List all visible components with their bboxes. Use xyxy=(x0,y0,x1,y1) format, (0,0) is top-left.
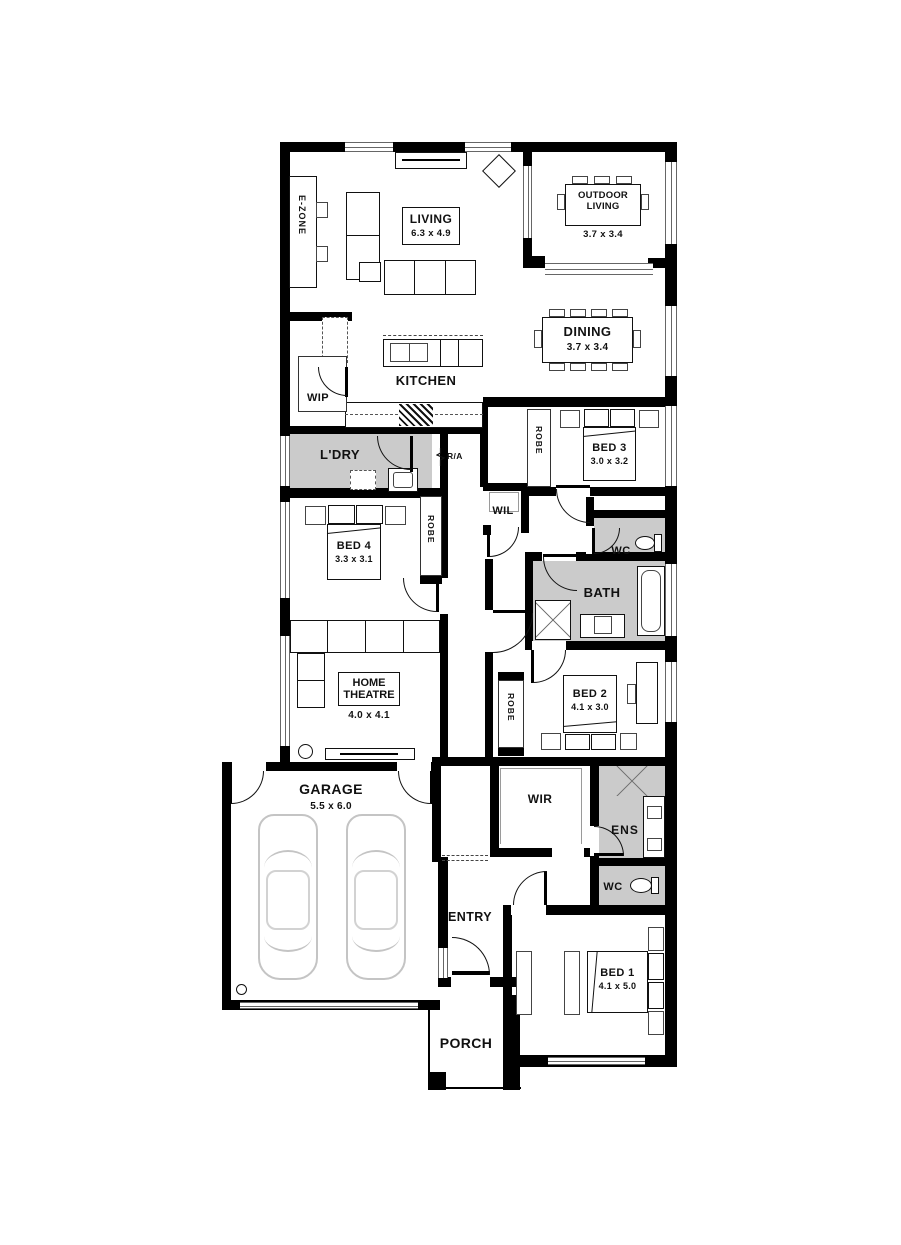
car-2 xyxy=(346,814,406,980)
sofa-h-div2 xyxy=(445,260,446,295)
dining-chair-b3 xyxy=(591,363,607,371)
wall-bed3-bottom xyxy=(525,487,667,496)
dining-chair-b1 xyxy=(549,363,565,371)
dining-label: DINING xyxy=(543,325,632,340)
laundry-label: L'DRY xyxy=(300,448,380,463)
ezone-chair-1 xyxy=(316,202,328,218)
dining-chair-b4 xyxy=(612,363,628,371)
island-overhang xyxy=(383,335,483,336)
bed2-desk xyxy=(636,662,658,724)
car-1 xyxy=(258,814,318,980)
wip-label: WIP xyxy=(300,392,336,404)
outdoor-chair-r xyxy=(641,194,649,210)
bath-label: BATH xyxy=(576,586,628,601)
living-label-box: LIVING 6.3 x 4.9 xyxy=(402,207,460,245)
dining-chair-t4 xyxy=(612,309,628,317)
bath-basin xyxy=(594,616,612,634)
opening-garage-l xyxy=(232,762,266,771)
window-entry-sidelight xyxy=(438,948,448,978)
wc1-toilet xyxy=(635,536,655,550)
bed3-pillow-2 xyxy=(610,409,635,427)
outdoor-dims: 3.7 x 3.4 xyxy=(575,229,631,240)
wall-wir-left xyxy=(490,757,499,857)
dining-chair-t2 xyxy=(570,309,586,317)
driveway-dash-2 xyxy=(442,860,488,861)
car-1-windshield xyxy=(264,850,312,868)
return-air-label: R/A xyxy=(447,452,471,462)
theatre-tv-line xyxy=(340,753,398,755)
tv-line xyxy=(402,159,460,161)
wir-label: WIR xyxy=(515,793,565,806)
wc2-label: WC xyxy=(598,881,628,893)
ens-basin-1 xyxy=(647,806,662,819)
bed4-pillow-2 xyxy=(356,505,383,524)
bath-shower xyxy=(535,600,571,640)
dining-dims: 3.7 x 3.4 xyxy=(543,342,632,353)
bed3-label: BED 3 xyxy=(584,442,635,454)
opening-bed1 xyxy=(511,905,546,915)
bed2-pillow-1 xyxy=(565,734,590,750)
kitchen-label: KITCHEN xyxy=(385,374,467,389)
garage-door-r-arc xyxy=(398,771,431,804)
opening-garage-r xyxy=(397,762,431,771)
bed3-sidetable-r xyxy=(639,410,659,428)
window-bed2-right xyxy=(665,662,677,722)
ezone-label: E-ZONE xyxy=(297,195,307,235)
bed4-robe-jamb-t xyxy=(420,488,442,496)
armchair xyxy=(482,154,516,188)
wall-h-757 xyxy=(432,757,667,766)
ezone-desk: E-ZONE xyxy=(289,176,317,288)
opening-front-door xyxy=(451,977,490,987)
sofa-h-div1 xyxy=(414,260,415,295)
floor-plan-canvas: E-ZONE LIVING 6.3 x 4.9 OUTDOOR LIVING 3… xyxy=(0,0,901,1245)
living-label: LIVING xyxy=(403,213,459,226)
outdoor-chair-t3 xyxy=(616,176,632,184)
window-living-top-2 xyxy=(465,142,511,152)
sliding-door-outdoor xyxy=(545,263,653,275)
laundry-tub-space xyxy=(350,470,376,490)
outdoor-chair-t1 xyxy=(572,176,588,184)
outdoor-label: OUTDOOR LIVING xyxy=(566,191,640,212)
outdoor-chair-t2 xyxy=(594,176,610,184)
wall-ens-wc2 xyxy=(590,858,667,866)
outdoor-table: OUTDOOR LIVING xyxy=(565,184,641,226)
bed2-sidetable-r xyxy=(620,733,637,750)
window-outdoor-right xyxy=(665,162,677,244)
bed4-pillow-1 xyxy=(328,505,355,524)
laundry-sink-bowl xyxy=(393,472,413,488)
bed4-dims: 3.3 x 3.1 xyxy=(328,554,380,564)
garage-floor-waste xyxy=(236,984,247,995)
front-door-arc xyxy=(452,937,490,975)
ens-basin-2 xyxy=(647,838,662,851)
car-2-windshield xyxy=(352,850,400,868)
bed1-pillow-1 xyxy=(648,953,664,980)
wc2-toilet xyxy=(630,878,652,893)
bed4-sidetable-l xyxy=(305,506,326,525)
bed1-dims: 4.1 x 5.0 xyxy=(588,981,647,991)
car-1-roof xyxy=(266,870,310,930)
bed1-pillow-2 xyxy=(648,982,664,1009)
wall-wil-right xyxy=(521,483,529,533)
theatre-sofa-h-div1 xyxy=(327,620,328,653)
dining-chair-t3 xyxy=(591,309,607,317)
bed1-headboard-1 xyxy=(648,927,664,951)
bed2-dims: 4.1 x 3.0 xyxy=(564,702,616,712)
bed1-wardrobe-1 xyxy=(516,951,532,1015)
opening-hall xyxy=(485,610,493,652)
wil-label: WIL xyxy=(486,505,520,517)
car-2-roof xyxy=(354,870,398,930)
bed3-pillow-1 xyxy=(584,409,609,427)
window-laundry-left xyxy=(280,436,290,486)
bed3-dims: 3.0 x 3.2 xyxy=(584,456,635,466)
window-bed4-left xyxy=(280,502,290,598)
ottoman xyxy=(359,262,381,282)
theatre-dims: 4.0 x 4.1 xyxy=(338,710,400,721)
driveway-dash-1 xyxy=(442,855,488,856)
bed2-robe: ROBE xyxy=(498,680,524,748)
bed1-door-arc xyxy=(513,871,547,905)
bed4-label: BED 4 xyxy=(328,540,380,552)
theatre-sofa-h-div3 xyxy=(403,620,404,653)
bed1-headboard-2 xyxy=(648,1011,664,1035)
opening-wir xyxy=(552,848,584,857)
return-air-symbol xyxy=(436,448,445,466)
wc2-cistern xyxy=(651,877,659,894)
living-dims: 6.3 x 4.9 xyxy=(403,228,459,239)
garage-door-l-arc xyxy=(231,771,264,804)
window-dining-right xyxy=(665,306,677,376)
bed1-wardrobe-2 xyxy=(564,951,580,1015)
porch-label: PORCH xyxy=(430,1036,502,1052)
garage-label: GARAGE xyxy=(286,782,376,798)
bed3-robe: ROBE xyxy=(527,409,551,487)
window-theatre-left xyxy=(280,636,290,746)
bed3-door-arc xyxy=(556,489,590,523)
wall-robe2-left xyxy=(485,672,493,758)
window-outdoor-left xyxy=(523,166,532,238)
bed3-robe-label: ROBE xyxy=(534,426,544,455)
bed4-robe: ROBE xyxy=(420,496,442,576)
dining-chair-t1 xyxy=(549,309,565,317)
bed1-label: BED 1 xyxy=(588,967,647,979)
theatre-sofa-h-div2 xyxy=(365,620,366,653)
island-div2 xyxy=(458,339,459,367)
dining-chair-l xyxy=(534,330,542,348)
car-1-rear-window xyxy=(264,936,312,952)
sofa-vertical-divider xyxy=(346,235,380,236)
opening-bed2 xyxy=(532,641,566,650)
bed2-pillow-2 xyxy=(591,734,616,750)
bed3-door-leaf xyxy=(556,485,590,488)
garage-dims: 5.5 x 6.0 xyxy=(286,801,376,812)
wall-garage-right xyxy=(432,762,441,862)
window-living-top-1 xyxy=(345,142,393,152)
bed4-sidetable-r xyxy=(385,506,406,525)
wc1-cistern xyxy=(654,534,662,552)
wall-bed3-top xyxy=(483,397,667,407)
sofa-horizontal xyxy=(384,260,476,295)
dining-chair-r xyxy=(633,330,641,348)
bed2-door-arc xyxy=(533,650,566,683)
window-bed1-bottom xyxy=(548,1057,645,1065)
theatre-sofa-v-div xyxy=(297,680,325,681)
wall-wc1-top xyxy=(586,510,665,518)
wall-outdoor-corner-l xyxy=(523,256,545,268)
island-div1 xyxy=(440,339,441,367)
theatre-label-box: HOME THEATRE xyxy=(338,672,400,706)
ezone-chair-2 xyxy=(316,246,328,262)
outdoor-chair-l xyxy=(557,194,565,210)
garage-door-panel xyxy=(240,1002,418,1009)
dining-chair-b2 xyxy=(570,363,586,371)
bed2-robe-jamb-b xyxy=(498,748,524,756)
theatre-label: HOME THEATRE xyxy=(339,677,399,702)
bed2-desk-chair xyxy=(627,684,636,704)
dining-table: DINING 3.7 x 3.4 xyxy=(542,317,633,363)
entry-label: ENTRY xyxy=(440,910,500,924)
cooktop xyxy=(399,404,433,426)
ens-shower-area xyxy=(599,766,665,796)
window-bath-right xyxy=(665,564,677,636)
wil-door-arc xyxy=(489,527,519,557)
bathtub-inner xyxy=(641,570,661,632)
wall-porch-edge-b xyxy=(428,1087,521,1089)
bed3-sidetable-l xyxy=(560,410,580,428)
bed2-robe-label: ROBE xyxy=(506,693,516,722)
bed4-door-arc xyxy=(403,578,437,612)
window-bed3-right xyxy=(665,406,677,486)
car-2-rear-window xyxy=(352,936,400,952)
bed2-label: BED 2 xyxy=(564,688,616,700)
bed2-robe-jamb-t xyxy=(498,672,524,680)
theatre-lamp xyxy=(298,744,313,759)
bed4-robe-label: ROBE xyxy=(426,515,436,544)
bed2-sidetable-l xyxy=(541,733,561,750)
island-sink-divider xyxy=(409,343,410,362)
